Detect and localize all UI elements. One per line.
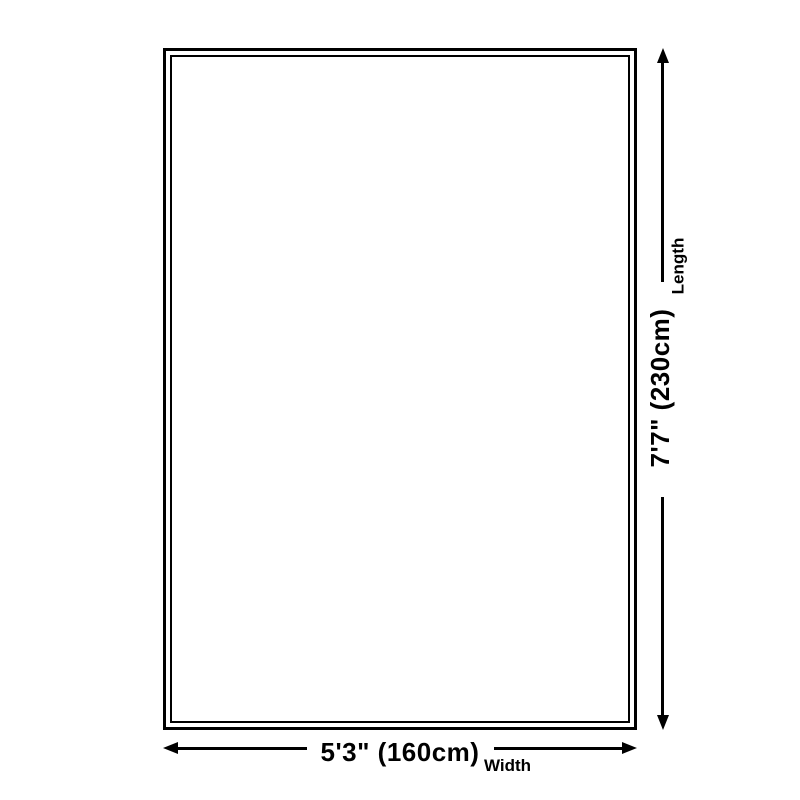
size-diagram: Length 7'7" (230cm) 5'3" (160cm) Width xyxy=(0,0,800,800)
arrow-right-icon xyxy=(622,742,637,754)
length-label: Length xyxy=(670,238,687,295)
width-value: 5'3" (160cm) xyxy=(163,739,637,765)
rug-outline xyxy=(163,48,637,730)
width-label: Width xyxy=(484,757,531,774)
arrow-down-icon xyxy=(657,715,669,730)
length-dimension-line-top xyxy=(661,60,664,282)
length-dimension-line-bottom xyxy=(661,497,664,717)
rug-inner-border xyxy=(170,55,630,723)
length-value: 7'7" (230cm) xyxy=(647,309,673,468)
width-dimension-line-right xyxy=(494,747,624,750)
